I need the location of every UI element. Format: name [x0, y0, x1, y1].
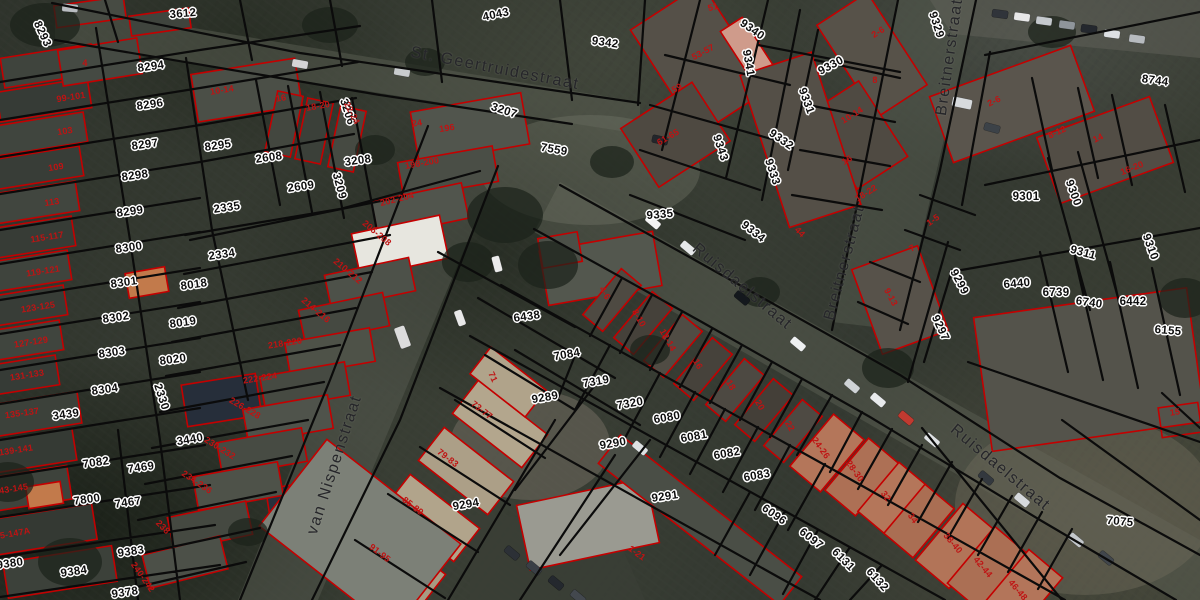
cadastral-geometry	[0, 0, 1200, 600]
map-viewport[interactable]: St. GeertruidestraatRuisdaelstraatRuisda…	[0, 0, 1200, 600]
